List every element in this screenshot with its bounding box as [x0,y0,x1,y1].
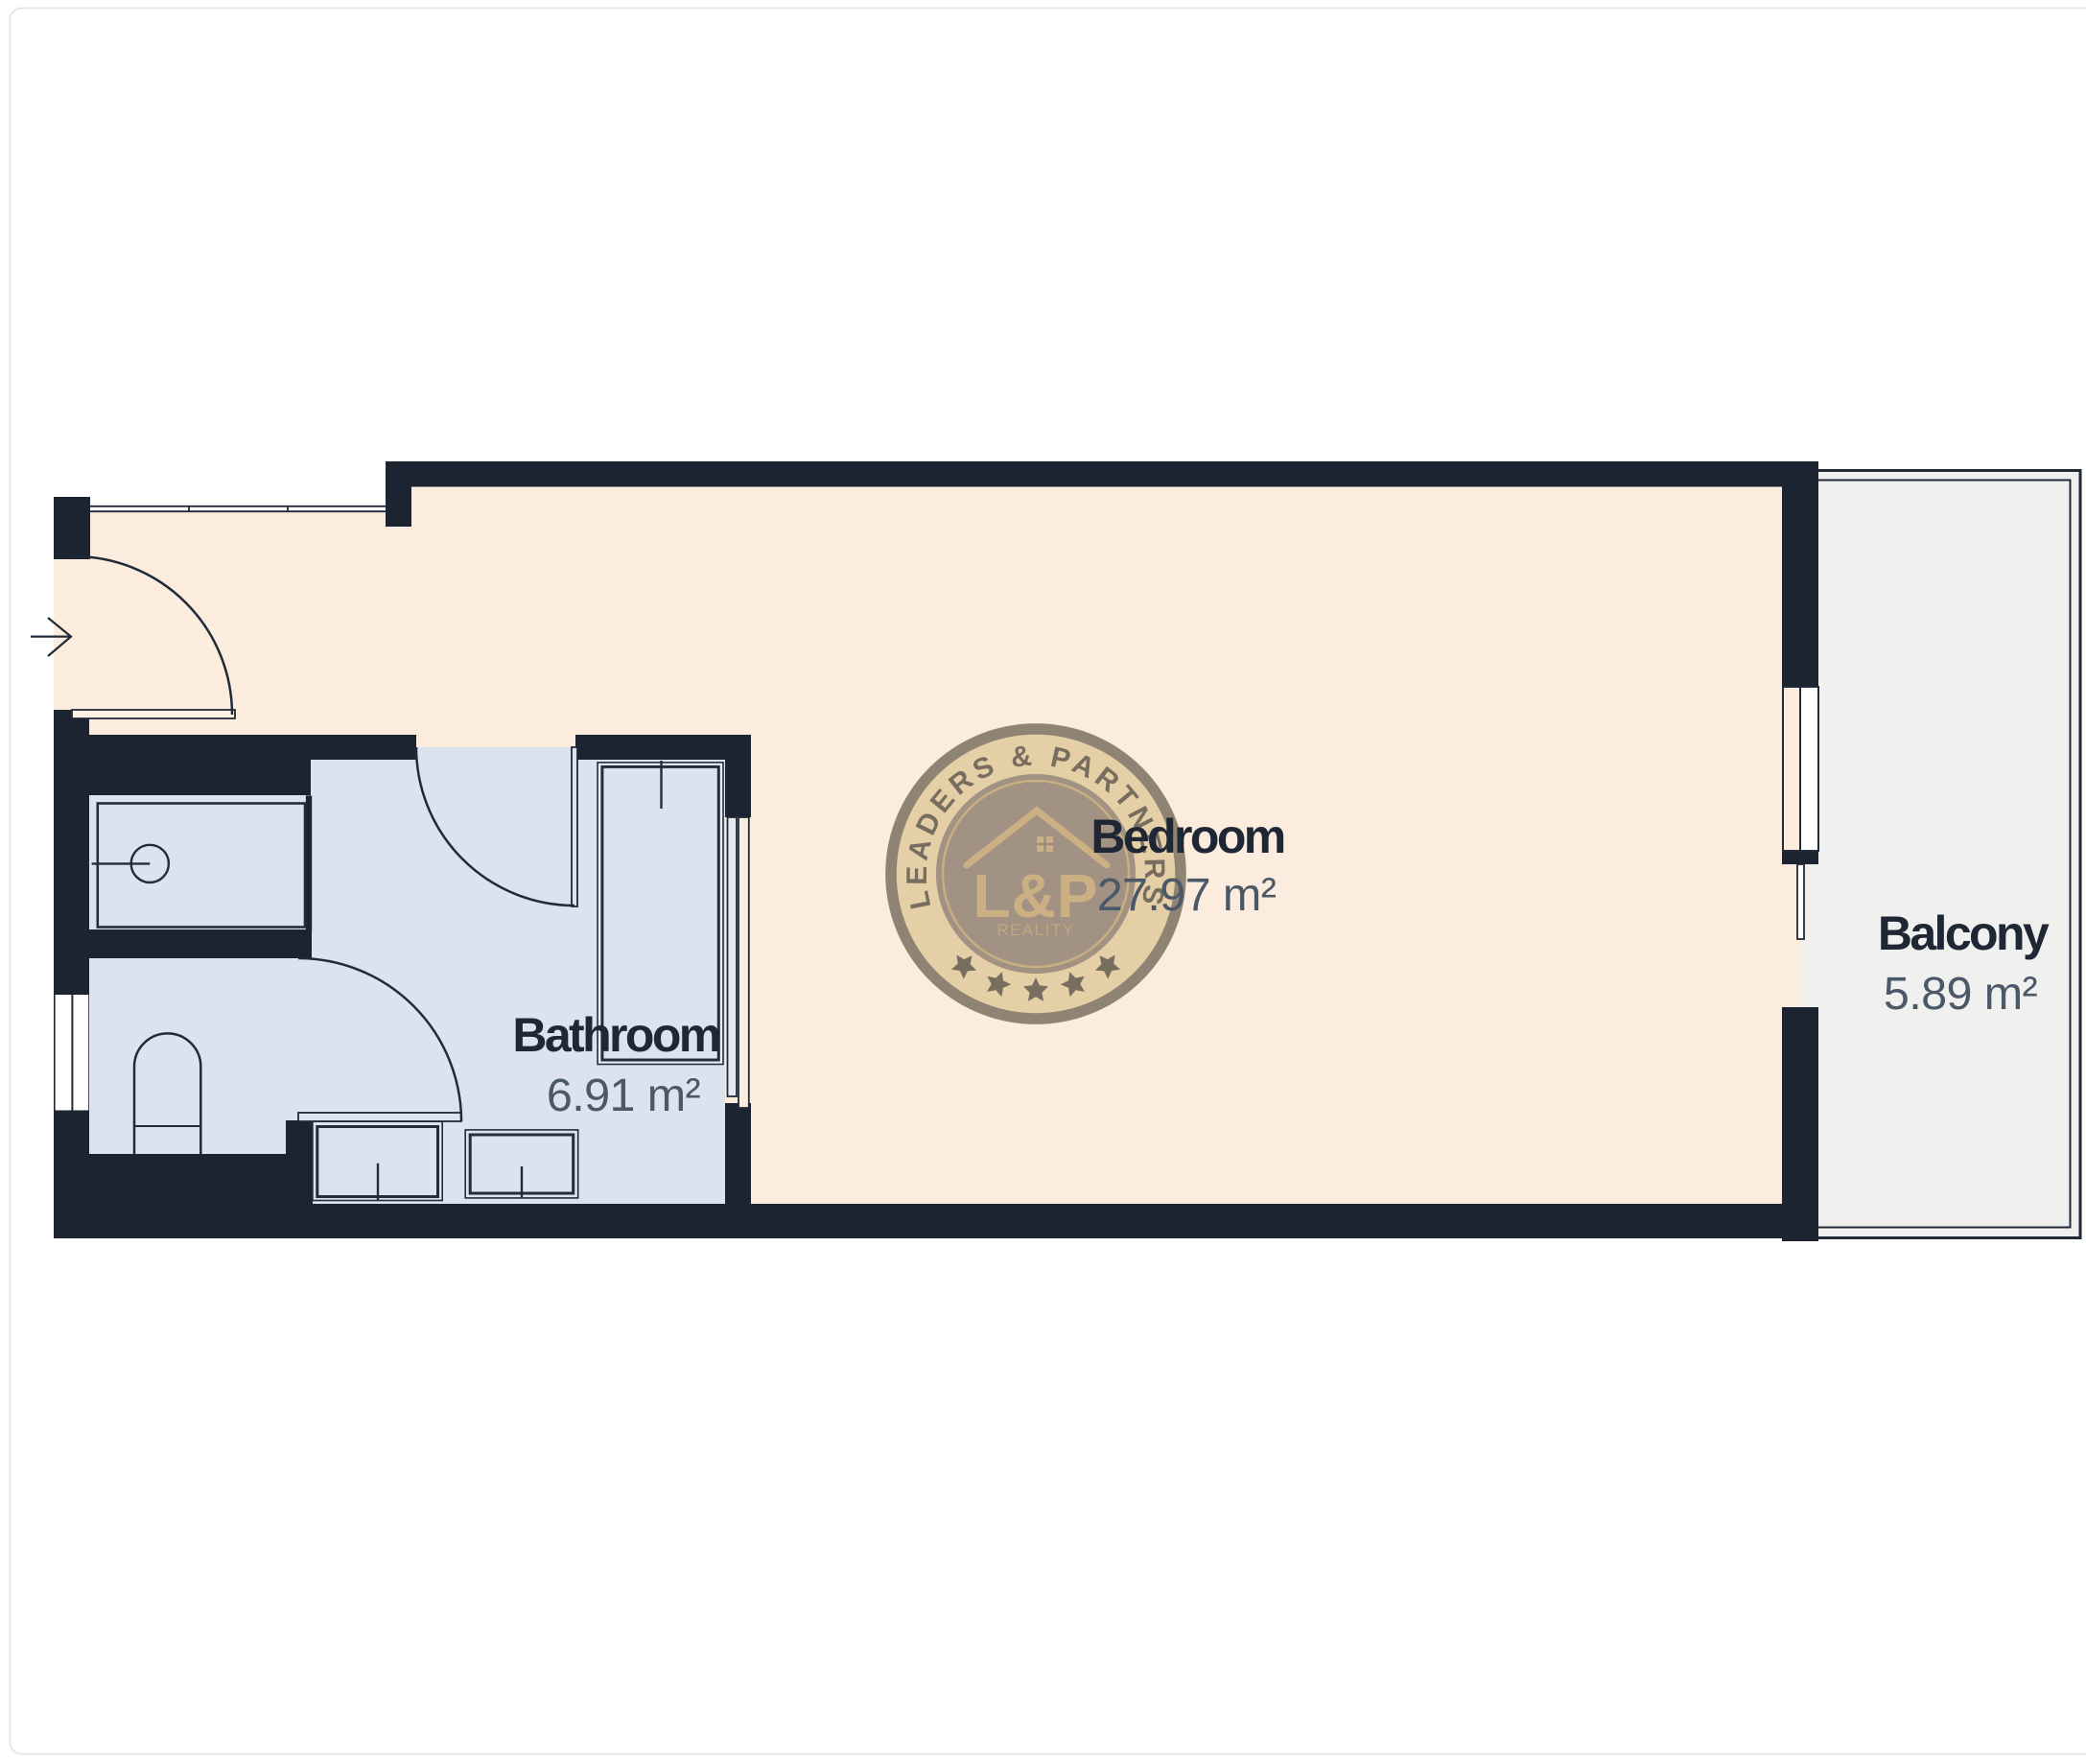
svg-text:6.91 m²: 6.91 m² [547,1070,701,1121]
svg-text:Bathroom: Bathroom [512,1008,718,1062]
svg-text:5.89 m²: 5.89 m² [1884,968,2038,1020]
svg-text:Bedroom: Bedroom [1090,810,1283,863]
svg-text:27.97 m²: 27.97 m² [1097,869,1277,921]
svg-text:Balcony: Balcony [1878,906,2050,960]
svg-text:REALITY: REALITY [996,921,1074,939]
